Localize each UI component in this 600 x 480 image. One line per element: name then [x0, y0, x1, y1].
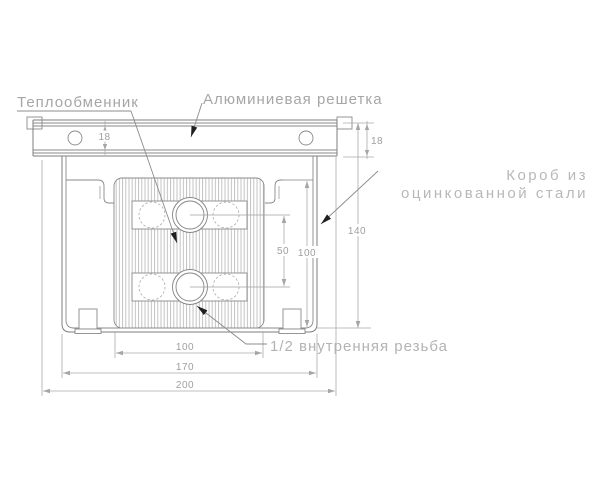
heat-exchanger-core [114, 178, 290, 328]
left-foot [79, 309, 97, 329]
svg-text:100: 100 [298, 248, 316, 259]
label-box-line2: оцинкованной стали [401, 185, 588, 202]
technical-drawing-page: 18 18 140 100 50 [0, 0, 600, 480]
leader-box [321, 171, 378, 224]
svg-text:100: 100 [176, 342, 194, 353]
svg-text:50: 50 [277, 246, 289, 257]
svg-text:140: 140 [348, 226, 366, 237]
svg-text:18: 18 [98, 132, 110, 143]
left-bracket [66, 180, 114, 203]
dim-overall-height: 140 [317, 123, 371, 328]
label-heat-exchanger: Теплообменник [17, 94, 139, 111]
label-aluminum-grille: Алюминиевая решетка [203, 91, 383, 108]
label-thread-note: 1/2 внутренняя резьба [270, 338, 448, 355]
grille-hole-right [299, 131, 313, 145]
convector-section-drawing: 18 18 140 100 50 [0, 0, 600, 480]
svg-text:170: 170 [176, 362, 194, 373]
svg-text:18: 18 [371, 136, 383, 147]
tube-top-left [139, 202, 165, 228]
aluminum-grille [27, 117, 352, 156]
right-bracket [265, 180, 313, 203]
grille-hole-left [68, 131, 82, 145]
right-foot [283, 309, 301, 329]
svg-text:200: 200 [176, 380, 194, 391]
dim-tube-pitch: 50 [274, 216, 293, 286]
tube-bottom-left [139, 274, 165, 300]
label-box-line1: Короб из [506, 167, 588, 184]
dim-core-width: 100 [115, 332, 263, 358]
